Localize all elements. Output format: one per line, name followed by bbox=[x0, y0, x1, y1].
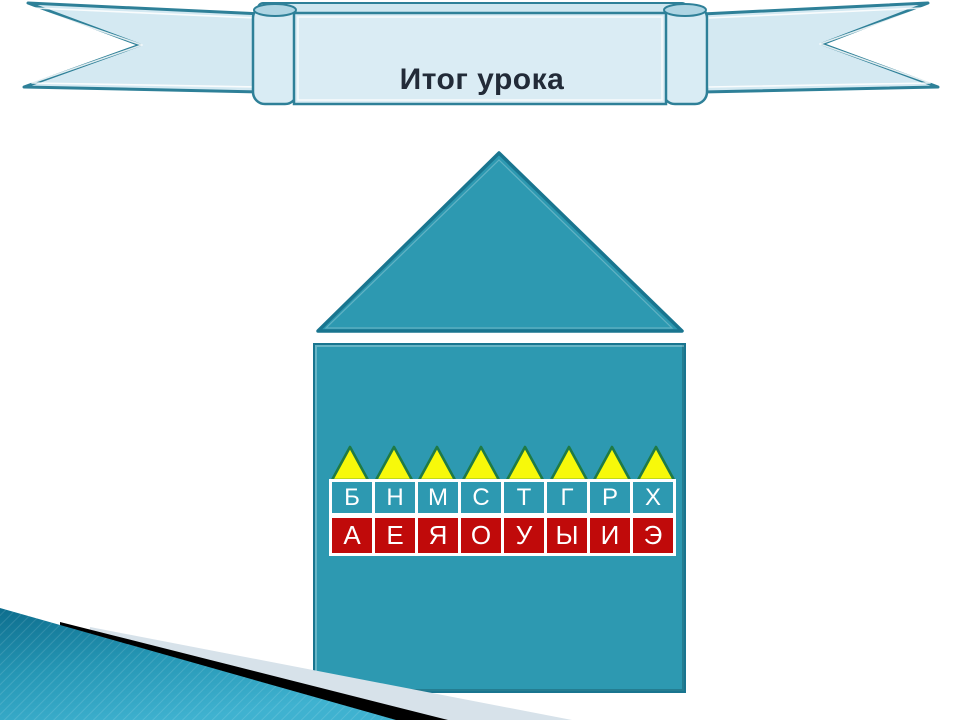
slide: Итог урока БНМСТГРХ АЕЯОУЫИЭ bbox=[0, 0, 960, 720]
roof-cell-triangle-icon bbox=[636, 444, 676, 482]
roof-cell-triangle-icon bbox=[461, 444, 501, 482]
triangle-row bbox=[330, 444, 676, 482]
letter-table: БНМСТГРХ АЕЯОУЫИЭ bbox=[329, 479, 676, 556]
corner-teal-wedge-stripes bbox=[0, 608, 396, 720]
vowel-cell-6: Ы bbox=[547, 518, 587, 553]
consonant-row: БНМСТГРХ bbox=[332, 482, 673, 513]
roof-cell-triangle-icon bbox=[374, 444, 414, 482]
vowel-cell-3: Я bbox=[418, 518, 458, 553]
vowel-cell-1: А bbox=[332, 518, 372, 553]
ribbon-right-roll-cap bbox=[664, 4, 706, 16]
consonant-cell-5: Т bbox=[504, 482, 544, 513]
ribbon-back-flap bbox=[258, 3, 687, 13]
roof-cell-triangle-icon bbox=[549, 444, 589, 482]
roof-triangle bbox=[318, 153, 682, 331]
corner-decoration bbox=[0, 595, 600, 720]
roof-cell-triangle-icon bbox=[505, 444, 545, 482]
roof-cell-triangle-icon bbox=[417, 444, 457, 482]
consonant-cell-8: Х bbox=[633, 482, 673, 513]
consonant-cell-7: Р bbox=[590, 482, 630, 513]
vowel-cell-5: У bbox=[504, 518, 544, 553]
house-roof bbox=[298, 145, 702, 340]
vowel-cell-4: О bbox=[461, 518, 501, 553]
consonant-cell-6: Г bbox=[547, 482, 587, 513]
consonant-cell-3: М bbox=[418, 482, 458, 513]
consonant-cell-4: С bbox=[461, 482, 501, 513]
roof-cell-triangle-icon bbox=[592, 444, 632, 482]
vowel-cell-7: И bbox=[590, 518, 630, 553]
ribbon-left-roll-cap bbox=[254, 4, 296, 16]
vowel-row: АЕЯОУЫИЭ bbox=[332, 518, 673, 553]
consonant-cell-1: Б bbox=[332, 482, 372, 513]
consonant-cell-2: Н bbox=[375, 482, 415, 513]
vowel-cell-2: Е bbox=[375, 518, 415, 553]
vowel-cell-8: Э bbox=[633, 518, 673, 553]
roof-cell-triangle-icon bbox=[330, 444, 370, 482]
banner-title: Итог урока bbox=[254, 60, 710, 100]
